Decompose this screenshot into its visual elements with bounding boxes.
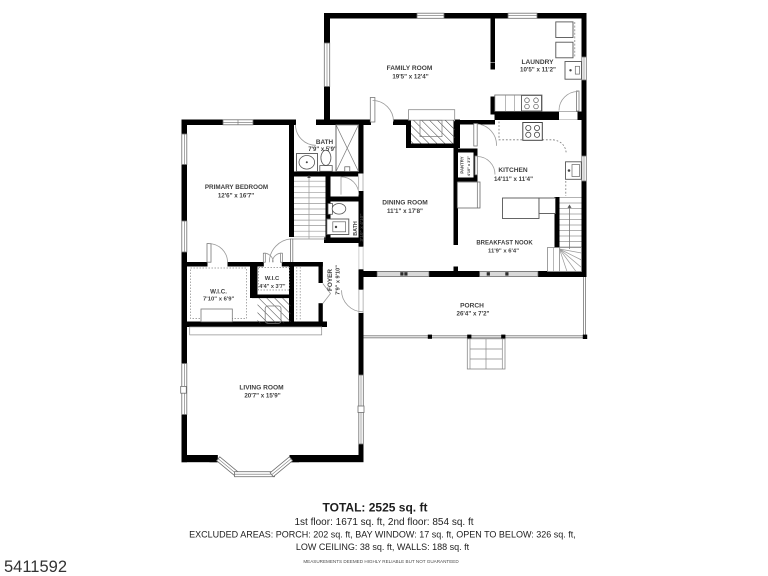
svg-text:DINING ROOM: DINING ROOM	[382, 200, 428, 207]
svg-text:1st floor: 1671 sq. ft, 2nd fl: 1st floor: 1671 sq. ft, 2nd floor: 854 s…	[295, 517, 474, 528]
svg-text:EXCLUDED AREAS: PORCH: 202 sq.: EXCLUDED AREAS: PORCH: 202 sq. ft, BAY W…	[189, 530, 576, 540]
svg-text:MEASUREMENTS DEEMED HIGHLY REL: MEASUREMENTS DEEMED HIGHLY RELIABLE BUT …	[303, 559, 459, 564]
svg-text:14'11" x 11'4": 14'11" x 11'4"	[494, 176, 533, 183]
svg-text:TOTAL: 2525 sq. ft: TOTAL: 2525 sq. ft	[323, 501, 428, 515]
svg-text:PANTRY: PANTRY	[460, 156, 465, 173]
svg-text:PORCH: PORCH	[460, 303, 484, 310]
svg-text:W.I.C: W.I.C	[265, 276, 280, 282]
svg-text:10'5" x 11'2": 10'5" x 11'2"	[520, 67, 556, 74]
svg-text:19'5" x 12'4": 19'5" x 12'4"	[392, 74, 428, 81]
svg-text:KITCHEN: KITCHEN	[498, 167, 528, 174]
svg-text:11'1" x 17'8": 11'1" x 17'8"	[387, 208, 423, 215]
svg-text:7'10" x 6'9": 7'10" x 6'9"	[203, 297, 235, 303]
svg-text:11'9" x 6'4": 11'9" x 6'4"	[488, 249, 519, 255]
svg-text:26'4" x 7'2": 26'4" x 7'2"	[457, 311, 490, 318]
svg-text:4'4" x 3'7": 4'4" x 3'7"	[259, 284, 286, 290]
svg-text:BATH: BATH	[316, 139, 334, 146]
svg-text:FOYER: FOYER	[327, 269, 334, 291]
svg-text:12'6" x 16'7": 12'6" x 16'7"	[218, 193, 254, 200]
svg-text:W.I.C.: W.I.C.	[210, 289, 227, 296]
svg-text:LAUNDRY: LAUNDRY	[522, 59, 555, 66]
svg-text:FAMILY ROOM: FAMILY ROOM	[387, 65, 433, 72]
svg-text:7'9" x 9'10": 7'9" x 9'10"	[336, 265, 342, 295]
svg-text:LIVING ROOM: LIVING ROOM	[239, 384, 284, 391]
svg-text:20'7" x 15'9": 20'7" x 15'9"	[244, 393, 280, 400]
svg-text:3'10" x 4'10": 3'10" x 4'10"	[359, 213, 365, 241]
svg-text:BATH: BATH	[353, 221, 359, 236]
svg-text:5411592: 5411592	[4, 558, 67, 576]
svg-text:LOW CEILING: 38 sq. ft, WALLS:: LOW CEILING: 38 sq. ft, WALLS: 188 sq. f…	[296, 542, 470, 552]
svg-text:7'9" x 5'9": 7'9" x 5'9"	[308, 147, 337, 153]
svg-text:4'10" x 3'3": 4'10" x 3'3"	[467, 156, 471, 176]
svg-text:PRIMARY BEDROOM: PRIMARY BEDROOM	[205, 184, 268, 191]
svg-text:BREAKFAST NOOK: BREAKFAST NOOK	[476, 241, 533, 247]
